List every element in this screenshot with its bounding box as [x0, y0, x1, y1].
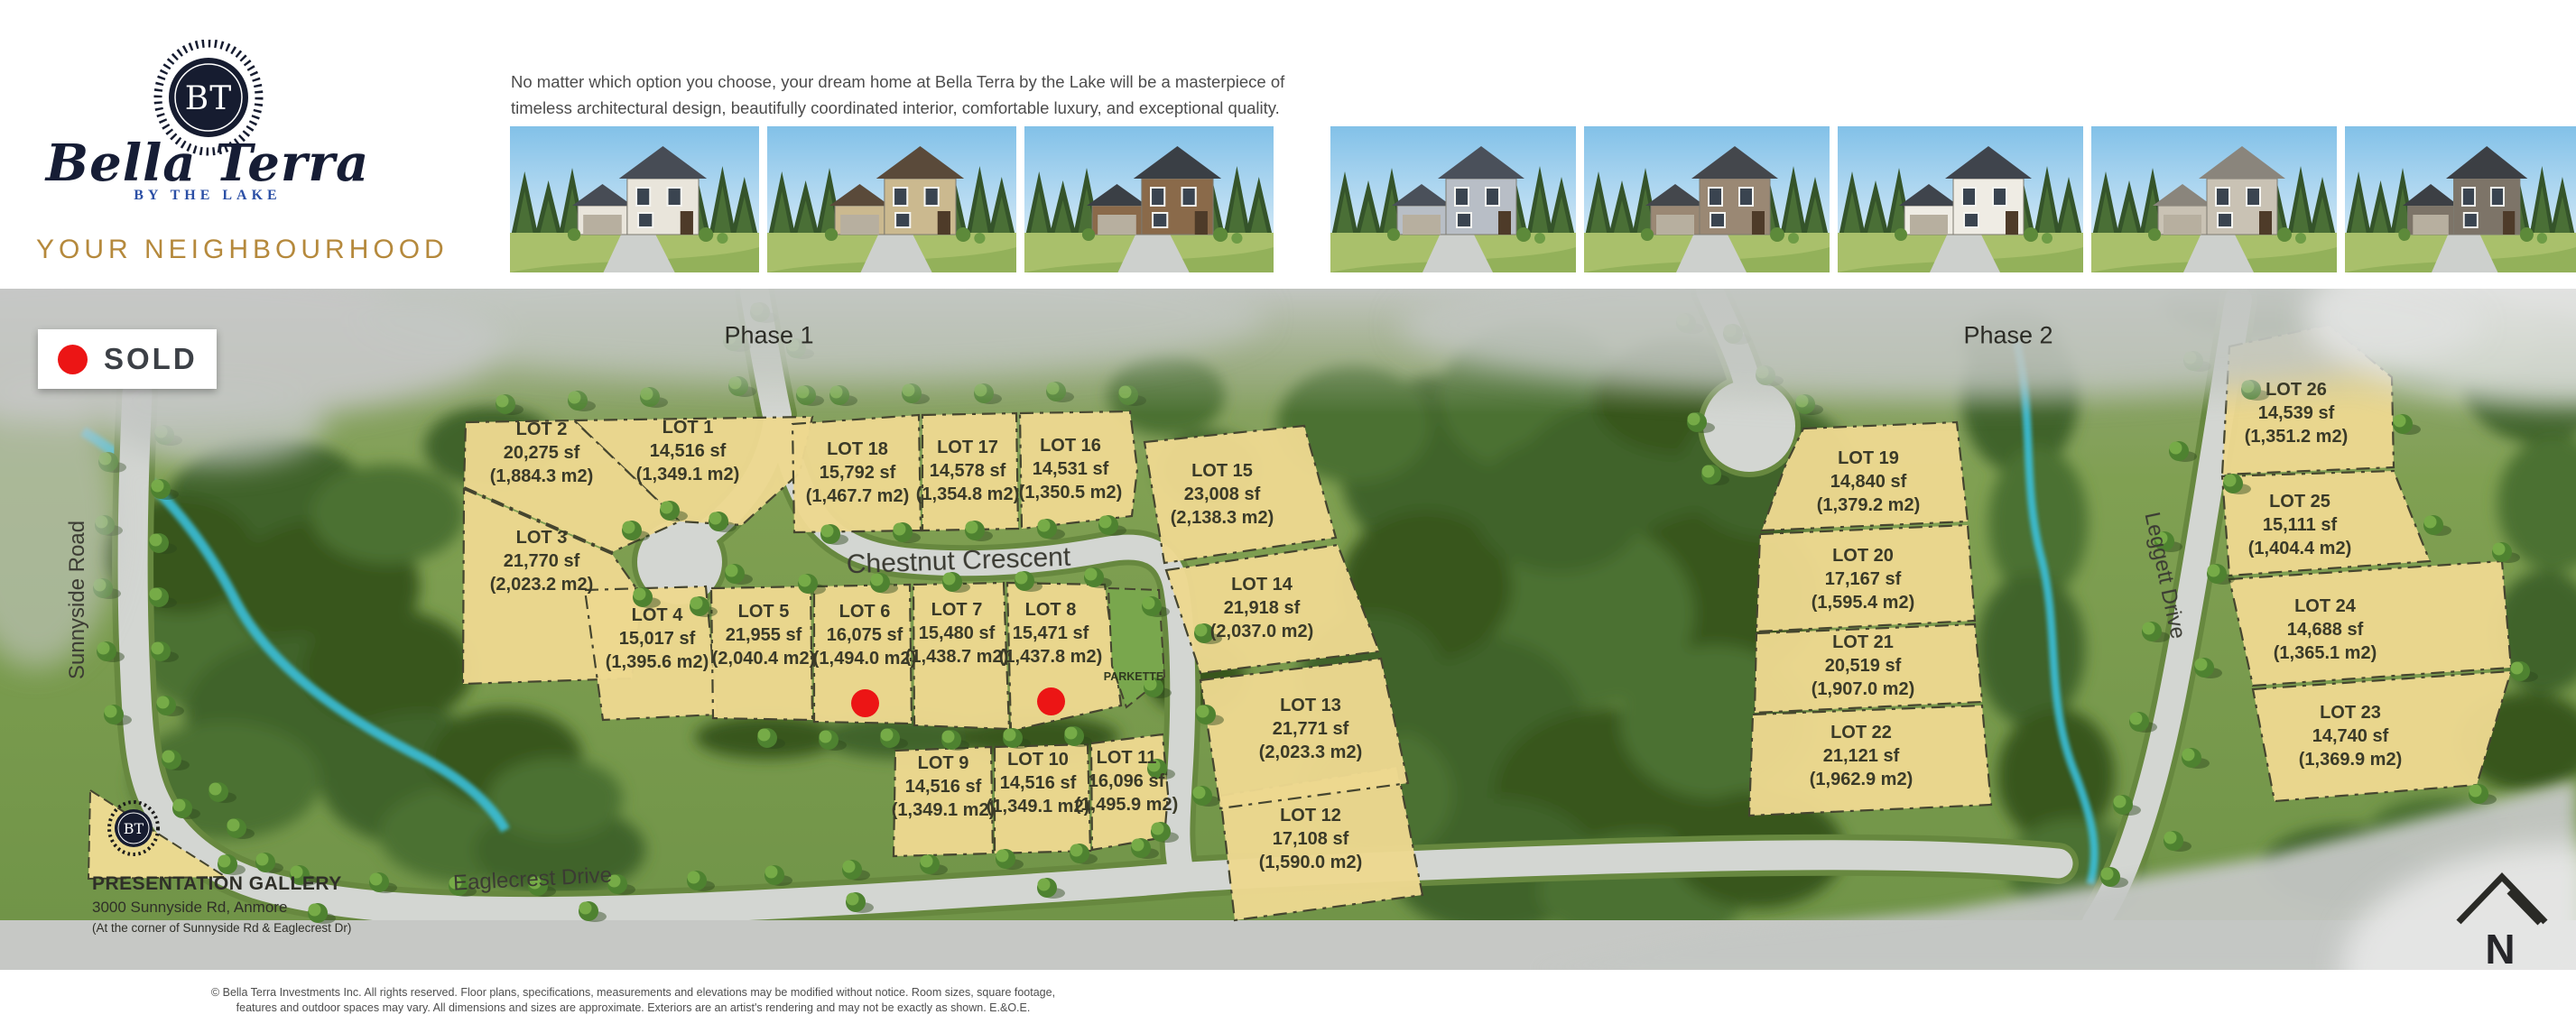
- lot-name: LOT 26: [2201, 378, 2391, 401]
- lot-name: LOT 18: [763, 438, 952, 461]
- lot-name: LOT 19: [1774, 447, 1963, 470]
- intro-paragraph: No matter which option you choose, your …: [511, 69, 1284, 121]
- lot-m2: (1,404.4 m2): [2205, 537, 2395, 560]
- lot-name: LOT 22: [1766, 721, 1956, 744]
- lot-label-13: LOT 1321,771 sf(2,023.3 m2): [1216, 694, 1405, 764]
- phase2-label: Phase 2: [1963, 322, 2052, 350]
- mini-logo-monogram: BT: [124, 820, 144, 837]
- lot-m2: (1,369.9 m2): [2256, 748, 2445, 771]
- lot-name: LOT 13: [1216, 694, 1405, 717]
- lot-sf: 14,539 sf: [2201, 401, 2391, 425]
- house-rendering-3: [1024, 126, 1274, 272]
- lot-label-19: LOT 1914,840 sf(1,379.2 m2): [1774, 447, 1963, 517]
- lot-sf: 14,840 sf: [1774, 470, 1963, 493]
- lot-name: LOT 23: [2256, 701, 2445, 724]
- presentation-gallery-note: (At the corner of Sunnyside Rd & Eaglecr…: [92, 921, 351, 935]
- parkette-label: PARKETTE: [1104, 670, 1163, 683]
- lot-sf: 20,275 sf: [447, 441, 636, 465]
- lot-name: LOT 12: [1216, 804, 1405, 827]
- lot-name: LOT 11: [1032, 746, 1221, 770]
- lot-m2: (1,962.9 m2): [1766, 768, 1956, 791]
- house-illustration: [1024, 126, 1274, 272]
- lot-sf: 14,740 sf: [2256, 724, 2445, 748]
- lot-sf: 15,111 sf: [2205, 513, 2395, 537]
- lot-sf: 21,121 sf: [1766, 744, 1956, 768]
- lot-sf: 21,918 sf: [1167, 596, 1357, 620]
- sold-legend: SOLD: [38, 329, 217, 389]
- lot-sf: 21,771 sf: [1216, 717, 1405, 741]
- lot-m2: (2,023.2 m2): [447, 573, 636, 596]
- footer-line-2: features and outdoor spaces may vary. Al…: [0, 1001, 1266, 1016]
- house-illustration: [2345, 126, 2576, 272]
- lot-m2: (1,495.9 m2): [1032, 793, 1221, 816]
- house-rendering-7: [2091, 126, 2337, 272]
- presentation-gallery-title: PRESENTATION GALLERY: [92, 873, 351, 895]
- lot-sf: 21,770 sf: [447, 549, 636, 573]
- lot-sf: 15,792 sf: [763, 461, 952, 484]
- sold-legend-label: SOLD: [104, 342, 198, 376]
- lot-name: LOT 2: [447, 418, 636, 441]
- house-rendering-1: [510, 126, 759, 272]
- intro-line-1: No matter which option you choose, your …: [511, 69, 1284, 95]
- lot-m2: (1,590.0 m2): [1216, 851, 1405, 874]
- lot-label-26: LOT 2614,539 sf(1,351.2 m2): [2201, 378, 2391, 448]
- house-illustration: [767, 126, 1016, 272]
- house-rendering-6: [1838, 126, 2083, 272]
- house-rendering-2: [767, 126, 1016, 272]
- sold-dot: [1037, 687, 1065, 715]
- north-label: N: [2485, 926, 2515, 970]
- lot-m2: (1,907.0 m2): [1768, 678, 1958, 701]
- lot-label-24: LOT 2414,688 sf(1,365.1 m2): [2230, 595, 2420, 665]
- presentation-gallery-address: 3000 Sunnyside Rd, Anmore: [92, 899, 351, 917]
- house-rendering-5: [1584, 126, 1830, 272]
- lot-name: LOT 3: [447, 526, 636, 549]
- lot-m2: (1,365.1 m2): [2230, 641, 2420, 665]
- lot-label-2: LOT 220,275 sf(1,884.3 m2): [447, 418, 636, 488]
- intro-line-2: timeless architectural design, beautiful…: [511, 95, 1284, 121]
- lot-sf: 17,167 sf: [1768, 567, 1958, 591]
- lot-label-21: LOT 2120,519 sf(1,907.0 m2): [1768, 631, 1958, 701]
- lot-m2: (1,884.3 m2): [447, 465, 636, 488]
- footer-disclaimer: © Bella Terra Investments Inc. All right…: [0, 985, 1266, 1016]
- lot-sf: 16,096 sf: [1032, 770, 1221, 793]
- lot-name: LOT 21: [1768, 631, 1958, 654]
- lot-label-25: LOT 2515,111 sf(1,404.4 m2): [2205, 490, 2395, 560]
- lot-label-12: LOT 1217,108 sf(1,590.0 m2): [1216, 804, 1405, 874]
- house-illustration: [1584, 126, 1830, 272]
- brochure-page: BT Bella Terra BY THE LAKE YOUR NEIGHBOU…: [0, 0, 2576, 1033]
- phase1-label: Phase 1: [724, 322, 813, 350]
- lot-m2: (1,379.2 m2): [1774, 493, 1963, 517]
- logo-monogram: BT: [185, 80, 232, 117]
- road-label-sunnyside: Sunnyside Road: [65, 521, 90, 679]
- lot-label-3: LOT 321,770 sf(2,023.2 m2): [447, 526, 636, 596]
- lot-label-11: LOT 1116,096 sf(1,495.9 m2): [1032, 746, 1221, 816]
- lot-m2: (1,595.4 m2): [1768, 591, 1958, 614]
- lot-label-8: LOT 815,471 sf(1,437.8 m2): [956, 598, 1145, 669]
- lot-label-18: LOT 1815,792 sf(1,467.7 m2): [763, 438, 952, 508]
- gallery-row: [0, 126, 2576, 272]
- lot-label-22: LOT 2221,121 sf(1,962.9 m2): [1766, 721, 1956, 791]
- house-illustration: [2091, 126, 2337, 272]
- lot-name: LOT 25: [2205, 490, 2395, 513]
- lot-m2: (1,467.7 m2): [763, 484, 952, 508]
- lot-sf: 17,108 sf: [1216, 827, 1405, 851]
- lot-name: LOT 14: [1167, 573, 1357, 596]
- lot-sf: 15,471 sf: [956, 622, 1145, 645]
- lot-m2: (2,037.0 m2): [1167, 620, 1357, 643]
- house-illustration: [1838, 126, 2083, 272]
- lot-m2: (1,351.2 m2): [2201, 425, 2391, 448]
- lot-label-14: LOT 1421,918 sf(2,037.0 m2): [1167, 573, 1357, 643]
- footer-line-1: © Bella Terra Investments Inc. All right…: [0, 985, 1266, 1001]
- lot-sf: 14,688 sf: [2230, 618, 2420, 641]
- lot-name: LOT 20: [1768, 544, 1958, 567]
- house-illustration: [1330, 126, 1576, 272]
- lot-name: LOT 24: [2230, 595, 2420, 618]
- sold-dot-icon: [58, 345, 88, 374]
- lot-name: LOT 8: [956, 598, 1145, 622]
- lot-m2: (2,023.3 m2): [1216, 741, 1405, 764]
- house-illustration: [510, 126, 759, 272]
- presentation-gallery-info: PRESENTATION GALLERY 3000 Sunnyside Rd, …: [92, 873, 351, 935]
- lot-m2: (2,138.3 m2): [1127, 506, 1317, 530]
- house-rendering-4: [1330, 126, 1576, 272]
- lot-m2: (1,437.8 m2): [956, 645, 1145, 669]
- lot-label-20: LOT 2017,167 sf(1,595.4 m2): [1768, 544, 1958, 614]
- house-rendering-8: [2345, 126, 2576, 272]
- sold-dot: [851, 689, 879, 717]
- lot-sf: 20,519 sf: [1768, 654, 1958, 678]
- site-map: BT N SOLD: [0, 289, 2576, 970]
- lot-label-23: LOT 2314,740 sf(1,369.9 m2): [2256, 701, 2445, 771]
